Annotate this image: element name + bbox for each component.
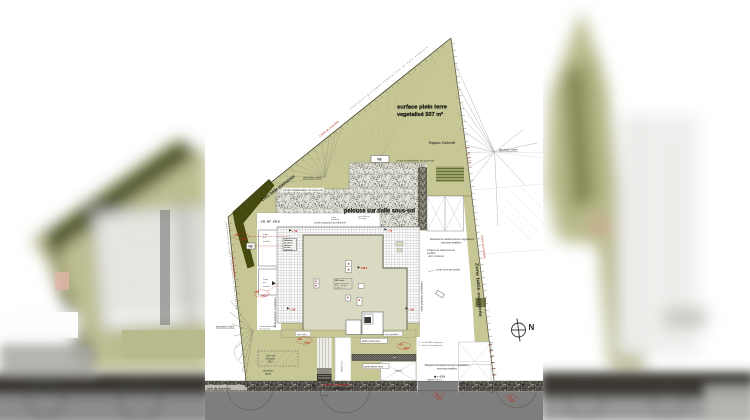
svg-text:Limite semi-perméable: Limite semi-perméable [436, 269, 461, 272]
svg-text:+2.10: +2.10 [509, 401, 516, 403]
svg-text:rue daguerre: rue daguerre [331, 387, 351, 391]
svg-text:N: N [529, 323, 535, 332]
svg-text:+ 4.10: + 4.10 [487, 390, 495, 394]
svg-text:+2.10: +2.10 [436, 398, 443, 400]
svg-text:◆ + 4.10: ◆ + 4.10 [433, 374, 445, 378]
svg-text:+60.5: +60.5 [304, 342, 311, 344]
svg-text:+ 59: + 59 [409, 307, 415, 311]
svg-text:Limite projection du bâtiment: Limite projection du bâtiment [421, 281, 424, 312]
svg-text:plantation cédre: plantation cédre [303, 176, 322, 180]
svg-text:+2m: +2m [508, 397, 513, 399]
svg-text:jardin pleine terre: jardin pleine terre [364, 366, 384, 369]
svg-text:local poubelles: local poubelles [385, 334, 399, 336]
svg-text:VB: VB [248, 245, 253, 249]
svg-text:plantation cédre: plantation cédre [499, 148, 518, 152]
svg-text:plantation cédre: plantation cédre [216, 325, 235, 329]
svg-text:+ 4 m: + 4 m [322, 394, 329, 398]
svg-text:visiteur: visiteur [395, 370, 403, 373]
svg-text:+59.2: +59.2 [361, 266, 368, 270]
svg-text:gaulis: gaulis [265, 373, 272, 376]
svg-text:+ 59: + 59 [290, 307, 296, 311]
svg-text:L 1 : accès PMR au logement: L 1 : accès PMR au logement [418, 341, 443, 344]
svg-text:Limite projection du bâtiment: Limite projection du bâtiment [314, 222, 346, 225]
svg-text:L 2 : local 2 roues motorisées: L 2 : local 2 roues motorisées [418, 344, 443, 347]
svg-text:asc.: asc. [263, 282, 267, 284]
svg-text:←: ← [334, 208, 338, 213]
svg-text:mur: mur [393, 357, 397, 359]
svg-text:semi-perméables: semi-perméables [437, 366, 458, 370]
svg-text:semi-perméables: semi-perméables [441, 241, 462, 245]
svg-text:VB: VB [377, 158, 382, 162]
svg-text:+60.5: +60.5 [241, 238, 248, 240]
svg-text:Limite implantation du sous-so: Limite implantation du sous-sol [396, 158, 434, 162]
svg-text:Espaces de stationnement végét: Espaces de stationnement végétalisés [425, 363, 470, 367]
svg-text:jardin pleine terre: jardin pleine terre [361, 340, 381, 343]
svg-text:PENTE 15%: PENTE 15% [342, 361, 344, 372]
svg-text:asc.: asc. [263, 237, 267, 239]
svg-text:+ 59: + 59 [292, 229, 298, 233]
svg-text:escalier: escalier [263, 241, 270, 243]
svg-text:surface plein terre: surface plein terre [397, 105, 447, 111]
svg-text:dont 1 visiteurs: dont 1 visiteurs [428, 255, 445, 258]
svg-text:+2m: +2m [435, 395, 440, 397]
svg-text:+60.5: +60.5 [403, 348, 410, 350]
svg-text:du sous-sol: du sous-sol [260, 329, 271, 331]
svg-text:Espaces de stationnement végét: Espaces de stationnement végétalisés [430, 237, 475, 241]
svg-text:20m³: 20m³ [268, 360, 274, 363]
svg-text:VB BF SBG: VB BF SBG [261, 220, 281, 224]
svg-text:pelouse sur dalle sous-sol: pelouse sur dalle sous-sol [344, 209, 415, 215]
svg-text:+ 59: + 59 [387, 228, 393, 232]
svg-text:1er étage: 1er étage [358, 217, 366, 220]
svg-text:Limite implantation du sous-so: Limite implantation du sous-sol [283, 188, 323, 192]
svg-text:motorisés: motorisés [284, 248, 293, 251]
svg-text:Espace Collectif: Espace Collectif [429, 141, 456, 145]
svg-text:escalier: escalier [263, 286, 270, 288]
svg-text:Limite projection du bâtiment: Limite projection du bâtiment [274, 297, 277, 328]
svg-text:local vélos: local vélos [297, 334, 307, 336]
svg-text:vegetalisé 507 m²: vegetalisé 507 m² [397, 111, 443, 118]
svg-text:1 250 m²: 1 250 m² [335, 287, 343, 290]
svg-text:+60.5: +60.5 [261, 295, 268, 297]
